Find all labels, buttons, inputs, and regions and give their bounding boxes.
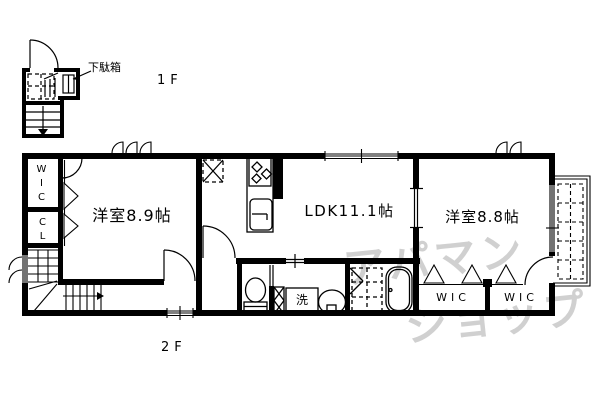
- stairs-1f: [26, 106, 60, 136]
- label-wic-left: WIC: [36, 164, 46, 206]
- closet-door-wic1-b: [462, 265, 482, 283]
- closet-door-wic1-a: [424, 265, 444, 283]
- refrigerator-space: [203, 160, 223, 182]
- kitchen: [203, 155, 273, 232]
- stove-burners: [252, 162, 272, 183]
- door-toilet: [270, 265, 273, 286]
- label-laundry: 洗: [296, 294, 308, 306]
- balcony: [553, 176, 590, 286]
- window-bumps-bedroom-right: [496, 142, 521, 153]
- entry-1f: [22, 40, 91, 138]
- entry-door-arc: [30, 40, 58, 68]
- kitchen-sink: [250, 199, 272, 230]
- label-wic-bottom-right: WIC: [493, 292, 549, 303]
- label-cl: CL: [37, 217, 47, 245]
- room-label-bedroom-left: 洋室8.9帖: [68, 208, 196, 224]
- bathtub: [386, 267, 412, 313]
- balcony-floor: [558, 184, 583, 279]
- linen-shelf: [274, 287, 284, 314]
- room-label-bedroom-right: 洋室8.8帖: [425, 210, 540, 225]
- door-arc-bedroom-left: [164, 250, 195, 281]
- window-right-balcony: [546, 185, 559, 252]
- window-top-ldk: [325, 149, 398, 163]
- floor-plan-drawing: [0, 0, 600, 400]
- window-bumps-bedroom-left: [112, 142, 151, 153]
- closet-door-wic-left: [64, 183, 78, 209]
- label-floor-1f: 1F: [157, 74, 183, 87]
- door-washroom: [286, 254, 304, 268]
- entry-steps: [44, 73, 58, 97]
- closet-door-wic2: [496, 265, 516, 283]
- door-arc-ldk: [203, 226, 235, 258]
- room-label-ldk: LDK11.1帖: [282, 204, 417, 219]
- kitchen-counter: [247, 155, 273, 232]
- stove: [249, 157, 271, 186]
- floor-plan: アパマン ショップ: [0, 0, 600, 400]
- label-shoe-cabinet: 下駄箱: [88, 62, 121, 73]
- window-bottom-corridor: [167, 306, 193, 320]
- window-left-stairs: [9, 255, 27, 283]
- label-floor-2f: 2F: [161, 341, 187, 354]
- label-wic-bottom-left: WIC: [425, 292, 481, 303]
- toilet: [244, 278, 267, 311]
- interior-walls: [28, 157, 492, 316]
- door-arc-balcony: [525, 257, 553, 285]
- shoe-cabinet: [63, 75, 74, 93]
